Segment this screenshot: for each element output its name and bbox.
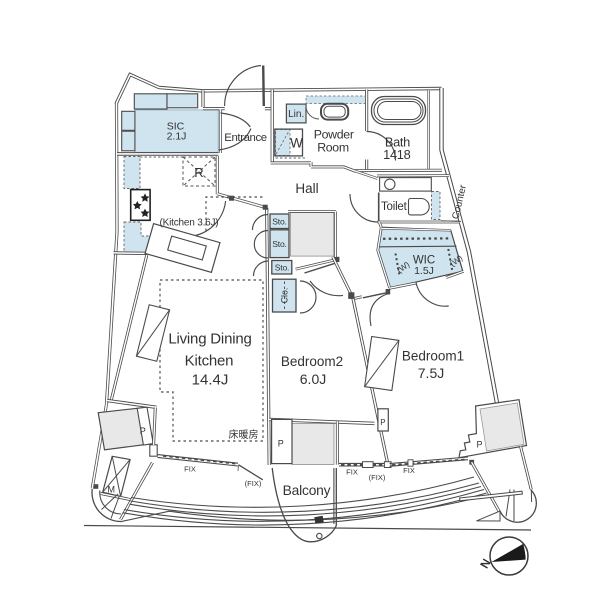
svg-text:Sto.: Sto. — [272, 239, 287, 249]
svg-text:Entrance: Entrance — [224, 132, 266, 144]
svg-text:Clo.: Clo. — [280, 288, 290, 304]
svg-text:M: M — [108, 485, 116, 495]
svg-text:W: W — [290, 136, 303, 151]
svg-text:Room: Room — [317, 141, 349, 155]
svg-text:Lin.: Lin. — [288, 109, 304, 120]
svg-text:1.5J: 1.5J — [414, 265, 434, 277]
svg-text:R: R — [194, 165, 203, 180]
svg-text:床暖房: 床暖房 — [229, 428, 259, 441]
svg-text:(FIX): (FIX) — [245, 479, 262, 488]
svg-text:14.4J: 14.4J — [192, 372, 229, 389]
svg-text:1418: 1418 — [383, 147, 410, 162]
svg-text:Bedroom1: Bedroom1 — [402, 349, 464, 364]
svg-text:P: P — [476, 440, 482, 450]
svg-text:FIX: FIX — [346, 468, 358, 477]
svg-text:Bedroom2: Bedroom2 — [281, 354, 343, 369]
svg-text:Sto.: Sto. — [275, 263, 290, 273]
svg-text:Balcony: Balcony — [283, 483, 331, 498]
svg-text:Hall: Hall — [295, 181, 318, 196]
svg-text:7.5J: 7.5J — [418, 365, 444, 381]
svg-text:(Kitchen 3.6J): (Kitchen 3.6J) — [160, 218, 219, 229]
svg-text:P: P — [278, 439, 284, 449]
svg-text:Powder: Powder — [314, 128, 354, 142]
svg-text:2.1J: 2.1J — [167, 131, 187, 143]
svg-text:Kitchen: Kitchen — [185, 353, 234, 370]
svg-text:Living Dining: Living Dining — [168, 331, 251, 348]
svg-text:6.0J: 6.0J — [300, 371, 326, 387]
svg-text:Sto.: Sto. — [272, 217, 287, 227]
svg-text:(FIX): (FIX) — [369, 473, 386, 482]
svg-text:FIX: FIX — [403, 466, 415, 475]
svg-text:FIX: FIX — [184, 465, 196, 474]
svg-text:P: P — [380, 418, 385, 427]
svg-text:Toilet: Toilet — [381, 201, 408, 213]
svg-text:P: P — [140, 426, 146, 436]
